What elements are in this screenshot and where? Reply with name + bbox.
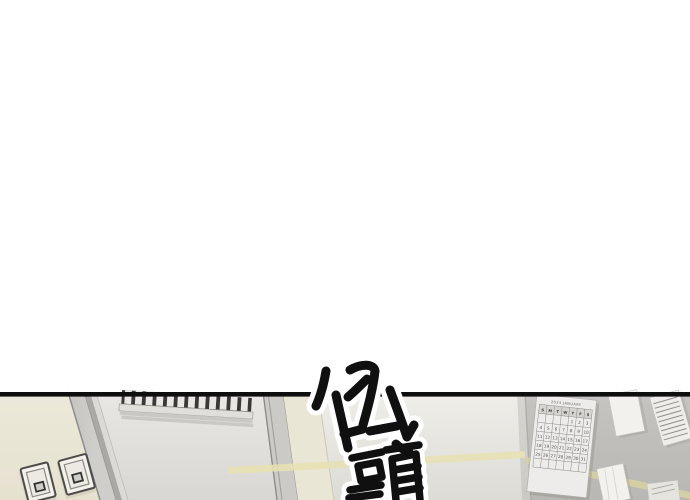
calendar-date-cell: 26 xyxy=(543,452,549,458)
webtoon-page: 2023 JANUARY SMTWTFS12345678910111213141… xyxy=(0,0,690,500)
calendar-date-cell: 30 xyxy=(573,456,579,462)
calendar-date-cell: 25 xyxy=(535,452,541,458)
calendar-date-cell: 17 xyxy=(582,438,588,444)
calendar-date-cell: 28 xyxy=(558,454,564,460)
calendar-date-cell: 14 xyxy=(560,436,566,442)
calendar-date-cell: 18 xyxy=(536,443,542,449)
wall-calendar: 2023 JANUARY SMTWTFS12345678910111213141… xyxy=(526,394,599,500)
calendar-date-cell: 16 xyxy=(575,438,581,444)
calendar-date-cell: 19 xyxy=(544,443,550,449)
pinned-note-bottom-right xyxy=(647,480,680,500)
switch-toggle xyxy=(34,482,45,492)
calendar-date-cell: 27 xyxy=(550,453,556,459)
calendar-date-cell: 20 xyxy=(551,444,557,450)
calendar-date-cell: 15 xyxy=(567,437,573,443)
calendar-date-cell: 21 xyxy=(559,445,565,451)
calendar-day-cell: W xyxy=(563,410,567,414)
calendar-date-cell: 13 xyxy=(552,435,558,441)
calendar-date-cell: 22 xyxy=(566,446,572,452)
calendar-date-cell: 31 xyxy=(580,456,586,462)
calendar-date-cell: 23 xyxy=(574,447,580,453)
comic-panel: 2023 JANUARY SMTWTFS12345678910111213141… xyxy=(0,0,690,500)
calendar-date-cell: 11 xyxy=(537,434,543,440)
switch-toggle xyxy=(72,473,83,483)
calendar-date-cell: 29 xyxy=(565,455,571,461)
calendar-date-cell: 24 xyxy=(581,447,587,453)
calendar-date-cell: 12 xyxy=(545,434,551,440)
calendar-date-cell: 10 xyxy=(583,429,589,435)
